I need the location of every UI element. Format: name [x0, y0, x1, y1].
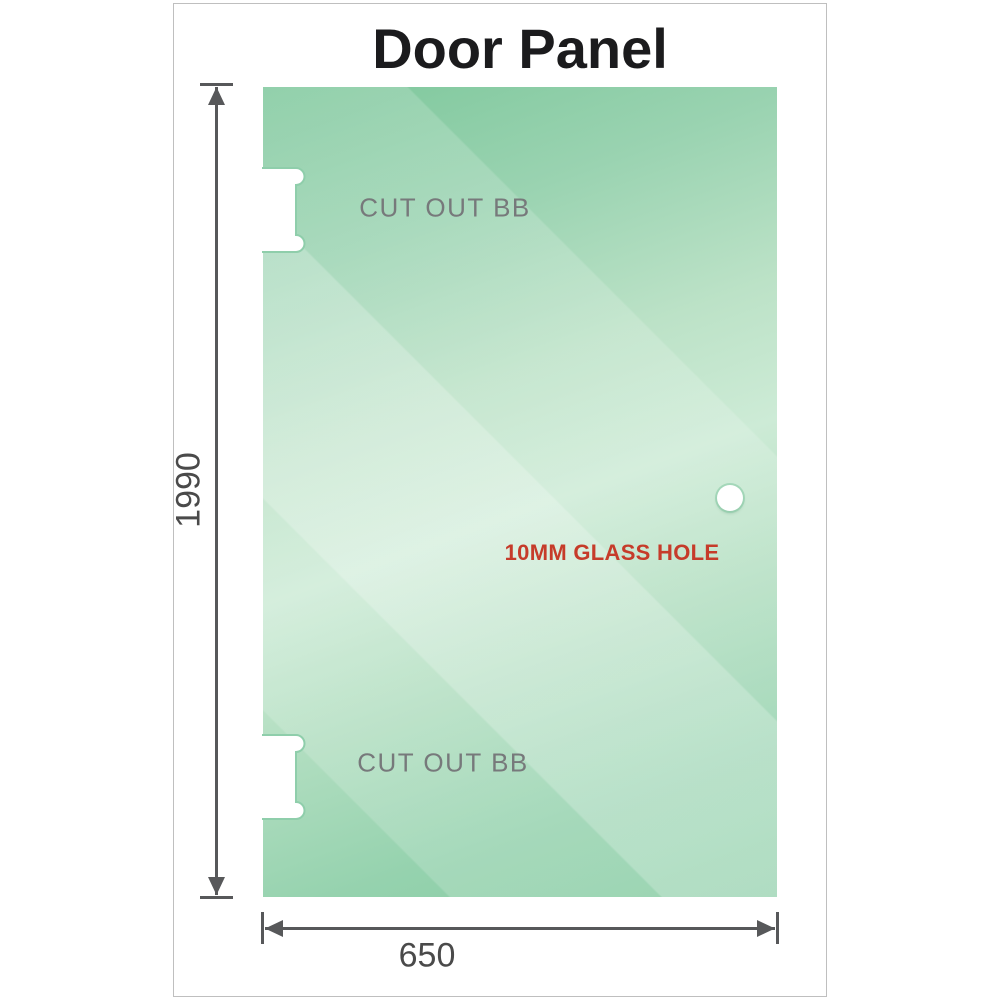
cutout-label-bottom: CUT OUT BB: [357, 748, 529, 779]
arrow-right-icon: [757, 920, 775, 937]
height-dimension-value: 1990: [170, 452, 209, 528]
arrow-down-icon: [208, 877, 225, 895]
page-title: Door Panel: [372, 16, 668, 81]
hinge-cutout-top-icon: [262, 167, 306, 253]
arrow-left-icon: [265, 920, 283, 937]
glass-hole-icon: [717, 485, 743, 511]
cutout-label-top: CUT OUT BB: [359, 193, 531, 224]
hinge-cutout-bottom-icon: [262, 734, 306, 820]
arrow-up-icon: [208, 87, 225, 105]
width-dimension-value: 650: [399, 937, 456, 976]
glass-hole-label: 10MM GLASS HOLE: [505, 540, 720, 566]
diagram-canvas: Door Panel 1990 650 CUT OUT BB CUT OUT B…: [0, 0, 1000, 1000]
width-dimension-line: [261, 912, 779, 945]
